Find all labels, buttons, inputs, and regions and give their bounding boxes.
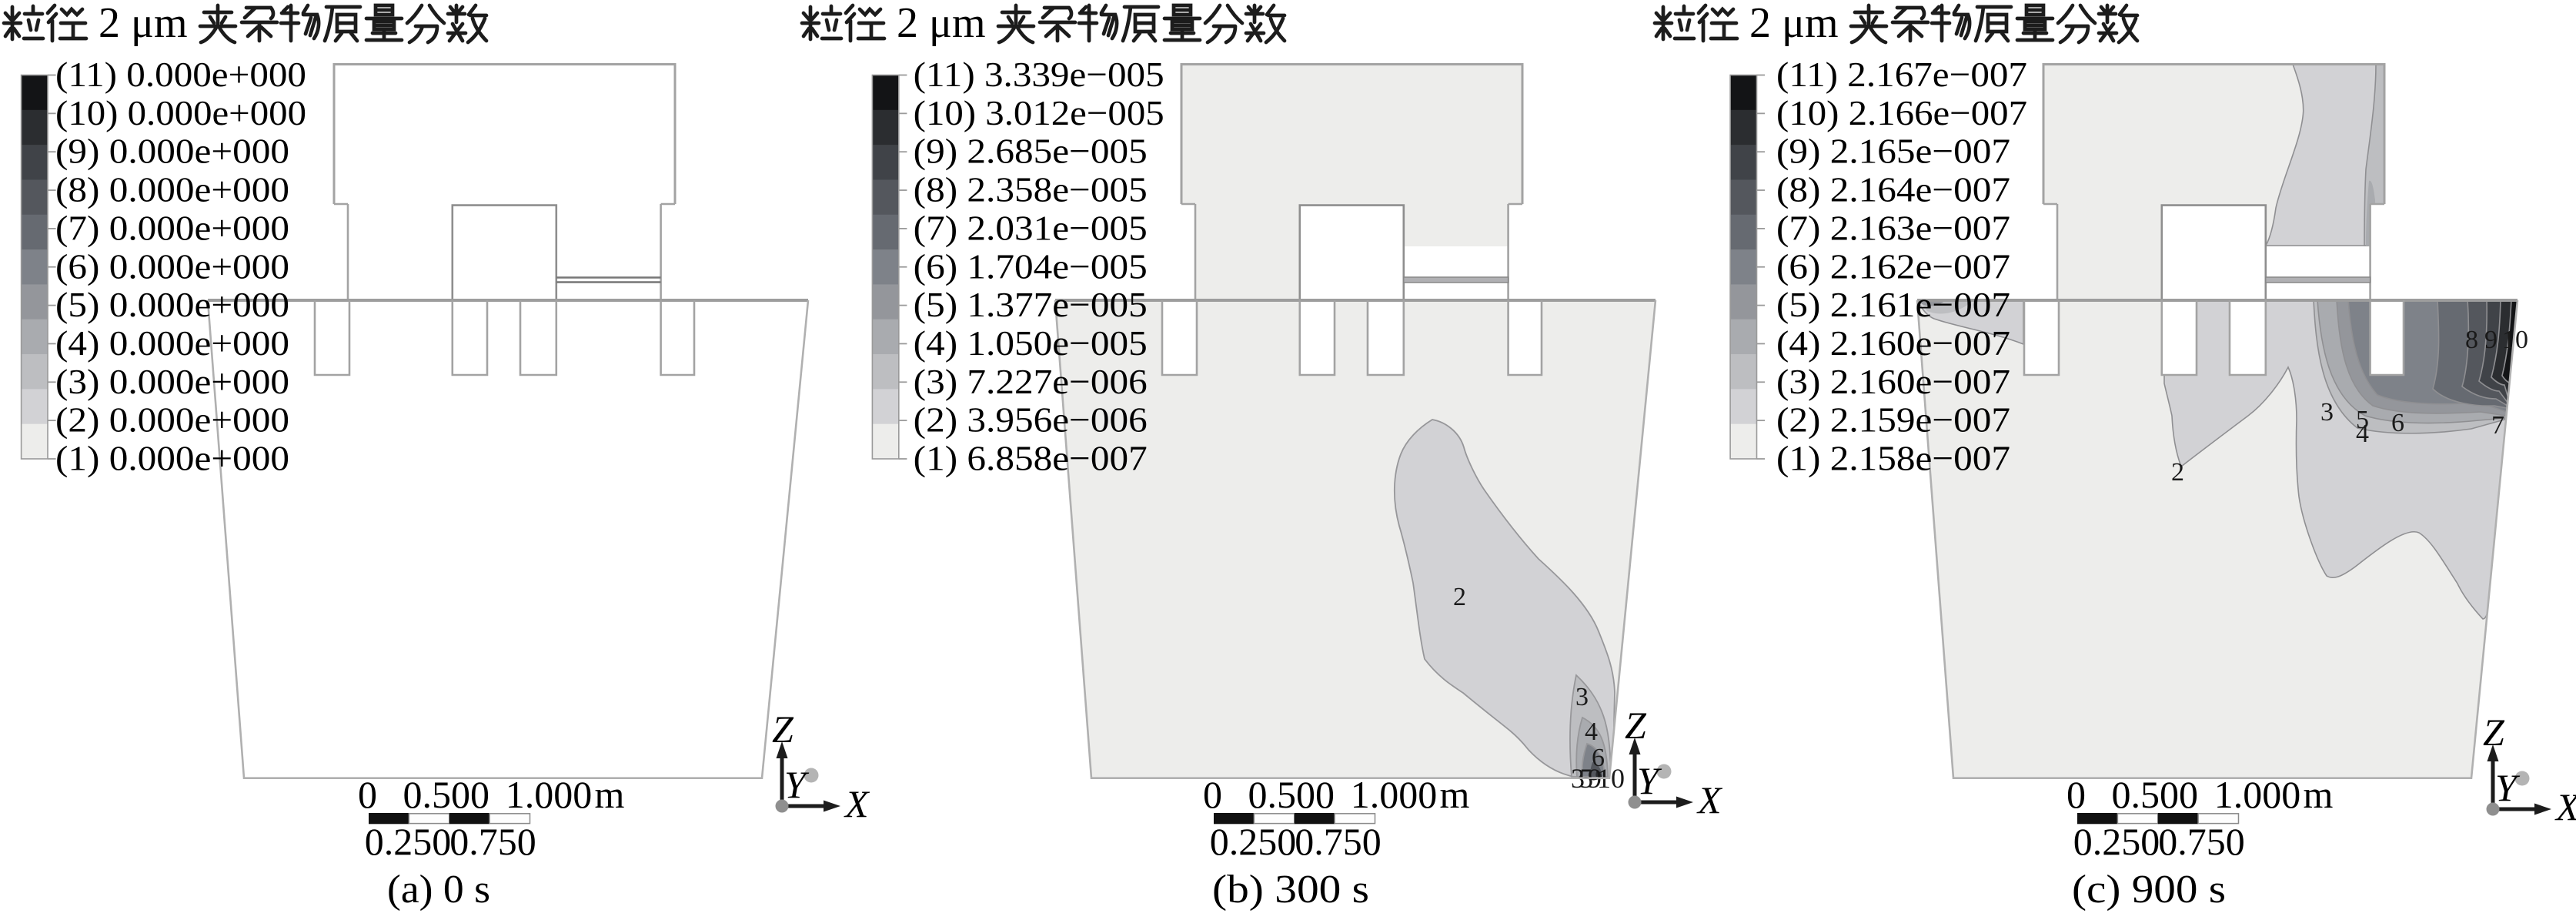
svg-text:(2) 2.159e−007: (2) 2.159e−007 — [1776, 400, 2010, 440]
svg-text:2: 2 — [1453, 583, 1466, 611]
svg-text:(5) 2.161e−007: (5) 2.161e−007 — [1776, 285, 2010, 324]
svg-text:(9) 0.000e+000: (9) 0.000e+000 — [55, 132, 289, 171]
svg-text:1.000: 1.000 — [1351, 773, 1438, 816]
svg-text:(11) 2.167e−007: (11) 2.167e−007 — [1776, 55, 2027, 94]
svg-text:(8) 2.358e−005: (8) 2.358e−005 — [914, 170, 1148, 209]
svg-text:(10) 3.012e−005: (10) 3.012e−005 — [914, 93, 1164, 132]
svg-text:0: 0 — [1203, 773, 1222, 816]
svg-text:(10) 0.000e+000: (10) 0.000e+000 — [55, 93, 306, 132]
svg-text:Z: Z — [772, 708, 794, 751]
svg-text:0: 0 — [2066, 773, 2086, 816]
svg-text:(1) 6.858e−007: (1) 6.858e−007 — [914, 439, 1148, 478]
svg-text:3: 3 — [2320, 398, 2334, 427]
svg-text:(4) 2.160e−007: (4) 2.160e−007 — [1776, 323, 2010, 363]
svg-text:(2) 3.956e−006: (2) 3.956e−006 — [914, 400, 1148, 440]
svg-text:(7) 0.000e+000: (7) 0.000e+000 — [55, 208, 289, 247]
svg-text:Z: Z — [1625, 704, 1647, 747]
svg-text:(5) 0.000e+000: (5) 0.000e+000 — [55, 285, 289, 324]
svg-text:(5) 1.377e−005: (5) 1.377e−005 — [914, 285, 1148, 324]
svg-text:2 μm: 2 μm — [897, 0, 986, 47]
svg-text:0.750: 0.750 — [2158, 820, 2245, 863]
svg-text:2: 2 — [2171, 458, 2184, 487]
svg-text:4: 4 — [2356, 420, 2369, 448]
svg-text:0.750: 0.750 — [1295, 820, 1382, 863]
svg-text:(11) 3.339e−005: (11) 3.339e−005 — [914, 55, 1164, 94]
svg-text:0.250: 0.250 — [365, 820, 452, 863]
svg-text:(b) 300 s: (b) 300 s — [1212, 868, 1369, 912]
svg-text:0.250: 0.250 — [1210, 820, 1297, 863]
svg-text:0: 0 — [358, 773, 377, 816]
svg-text:2 μm: 2 μm — [1749, 0, 1839, 47]
svg-text:(2) 0.000e+000: (2) 0.000e+000 — [55, 400, 289, 440]
svg-text:6: 6 — [2391, 409, 2404, 437]
svg-text:0.500: 0.500 — [403, 773, 490, 816]
svg-text:8: 8 — [2465, 326, 2478, 354]
svg-text:(11) 0.000e+000: (11) 0.000e+000 — [55, 55, 306, 94]
svg-text:Z: Z — [2483, 711, 2505, 754]
svg-text:(8) 0.000e+000: (8) 0.000e+000 — [55, 170, 289, 209]
svg-text:m: m — [595, 773, 625, 816]
svg-text:m: m — [1440, 773, 1470, 816]
svg-text:(9) 2.685e−005: (9) 2.685e−005 — [914, 132, 1148, 171]
svg-text:3: 3 — [1575, 683, 1589, 711]
svg-text:(4) 1.050e−005: (4) 1.050e−005 — [914, 323, 1148, 363]
svg-text:(7) 2.031e−005: (7) 2.031e−005 — [914, 208, 1148, 247]
svg-text:(3) 7.227e−006: (3) 7.227e−006 — [914, 362, 1148, 401]
svg-text:(3) 0.000e+000: (3) 0.000e+000 — [55, 362, 289, 401]
svg-text:0.500: 0.500 — [2112, 773, 2199, 816]
svg-text:(a) 0 s: (a) 0 s — [387, 868, 490, 912]
svg-text:(9) 2.165e−007: (9) 2.165e−007 — [1776, 132, 2010, 171]
svg-text:(8) 2.164e−007: (8) 2.164e−007 — [1776, 170, 2010, 209]
svg-text:2 μm: 2 μm — [99, 0, 188, 47]
svg-text:(6) 1.704e−005: (6) 1.704e−005 — [914, 246, 1148, 286]
svg-text:(c) 900 s: (c) 900 s — [2072, 868, 2226, 912]
svg-text:7: 7 — [2491, 411, 2504, 440]
svg-text:X: X — [2554, 785, 2576, 828]
svg-text:1.000: 1.000 — [506, 773, 593, 816]
svg-text:0.250: 0.250 — [2073, 820, 2160, 863]
svg-text:(1) 0.000e+000: (1) 0.000e+000 — [55, 439, 289, 478]
svg-text:4: 4 — [1585, 718, 1598, 746]
svg-text:(7) 2.163e−007: (7) 2.163e−007 — [1776, 208, 2010, 247]
svg-text:(1) 2.158e−007: (1) 2.158e−007 — [1776, 439, 2010, 478]
svg-text:(6) 0.000e+000: (6) 0.000e+000 — [55, 246, 289, 286]
svg-text:m: m — [2304, 773, 2334, 816]
svg-text:X: X — [1696, 778, 1723, 821]
svg-text:(10) 2.166e−007: (10) 2.166e−007 — [1776, 93, 2027, 132]
svg-text:9: 9 — [2484, 326, 2497, 354]
svg-text:(3) 2.160e−007: (3) 2.160e−007 — [1776, 362, 2010, 401]
svg-text:1.000: 1.000 — [2214, 773, 2301, 816]
svg-text:X: X — [844, 782, 870, 825]
svg-text:(4) 0.000e+000: (4) 0.000e+000 — [55, 323, 289, 363]
svg-text:0.500: 0.500 — [1248, 773, 1335, 816]
svg-text:0.750: 0.750 — [449, 820, 536, 863]
svg-text:(6) 2.162e−007: (6) 2.162e−007 — [1776, 246, 2010, 286]
